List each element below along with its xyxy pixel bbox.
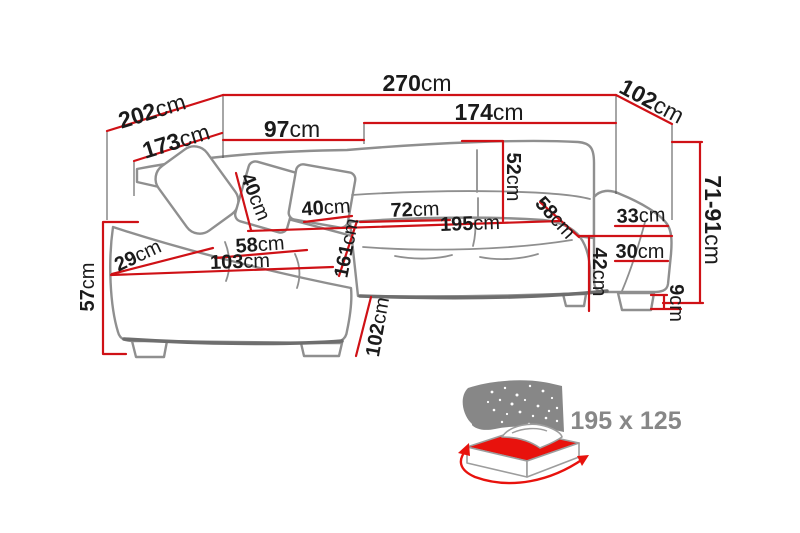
- diagram-canvas: 270cm 202cm 173cm 102cm 97cm 174cm 71-91…: [0, 0, 800, 533]
- dim-label-leg-height: 9cm: [665, 284, 687, 322]
- dim-label-seat-section-width: 72cm: [390, 198, 440, 222]
- dim-label-back-right-width: 102cm: [615, 73, 688, 128]
- dim-label-front-section-width: 174cm: [454, 99, 523, 125]
- dim-label-backrest-height: 52cm: [502, 153, 524, 202]
- dim-label-chaise-front-width: 103cm: [210, 250, 271, 274]
- unfold-arrowhead-left: [458, 443, 470, 456]
- curtain-icon: [463, 380, 564, 432]
- dim-label-height-range: 71-91cm: [700, 175, 726, 265]
- dim-label-seat-height: 57cm: [77, 263, 99, 312]
- chaise-leg-right: [301, 343, 342, 356]
- sleeping-size-label: 195 x 125: [570, 407, 681, 435]
- dim-label-armrest-top-width: 33cm: [616, 204, 666, 228]
- dim-label-chaise-depth: 102cm: [362, 296, 394, 359]
- dim-label-armrest-base-width: 30cm: [616, 241, 665, 263]
- sofa-dimension-diagram: 270cm 202cm 173cm 102cm 97cm 174cm 71-91…: [0, 0, 800, 533]
- dim-label-seat-front-height: 42cm: [588, 248, 610, 297]
- sofa-leg-right: [618, 293, 654, 310]
- dim-label-corner-back-width: 97cm: [264, 116, 320, 142]
- dim-label-sleeping-length: 195cm: [440, 212, 501, 236]
- dim-label-total-width: 270cm: [382, 70, 451, 96]
- chaise-leg-left: [132, 341, 167, 357]
- sleeper-function-icon: 195 x 125: [458, 380, 682, 483]
- sofa-drawing: [110, 140, 671, 357]
